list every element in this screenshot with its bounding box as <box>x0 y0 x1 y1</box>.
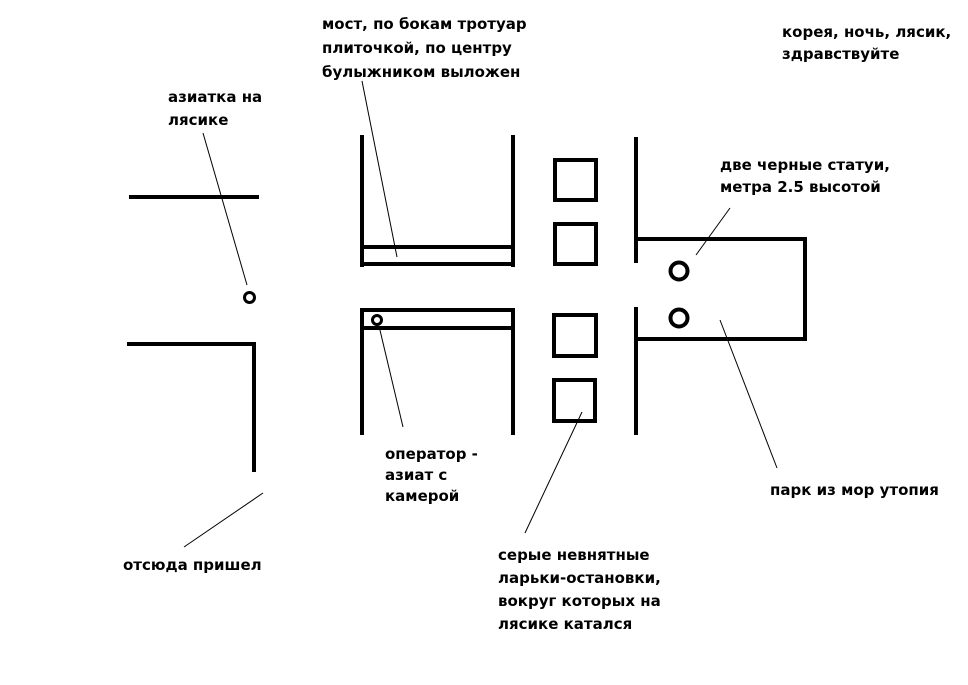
statue-marker-1 <box>671 263 688 280</box>
bridge-lower-block <box>360 310 515 435</box>
kiosk-square <box>554 315 596 356</box>
leader-kiosks <box>525 412 582 533</box>
statue-marker-2 <box>671 310 688 327</box>
asian-girl-marker <box>245 293 255 303</box>
leader-statues <box>696 208 730 255</box>
bridge-upper-block <box>360 135 515 267</box>
label-origin: отсюда пришел <box>123 554 262 576</box>
leader-origin <box>184 493 263 547</box>
label-scene: корея, ночь, лясик, здравствуйте <box>782 21 951 65</box>
label-park: парк из мор утопия <box>770 479 939 501</box>
label-kiosks: серые невнятные ларьки-остановки, вокруг… <box>498 544 661 636</box>
map-drawing <box>0 0 968 685</box>
park-outline <box>636 237 807 341</box>
kiosk-squares <box>554 160 596 421</box>
paint-sketch-canvas: мост, по бокам тротуар плиточкой, по цен… <box>0 0 968 685</box>
kiosk-square <box>555 224 596 264</box>
leader-operator <box>379 326 403 427</box>
label-operator: оператор - азиат с камерой <box>385 444 478 507</box>
leader-bridge <box>362 81 397 257</box>
leader-asian-girl <box>203 133 247 285</box>
operator-marker <box>373 316 382 325</box>
leader-park <box>720 320 777 468</box>
label-bridge: мост, по бокам тротуар плиточкой, по цен… <box>322 12 527 84</box>
label-statues: две черные статуи, метра 2.5 высотой <box>720 154 890 198</box>
label-asian-girl: азиатка на лясике <box>168 86 262 132</box>
kiosk-square <box>555 160 596 200</box>
kiosk-square <box>554 380 595 421</box>
left-corner-road <box>127 344 254 472</box>
